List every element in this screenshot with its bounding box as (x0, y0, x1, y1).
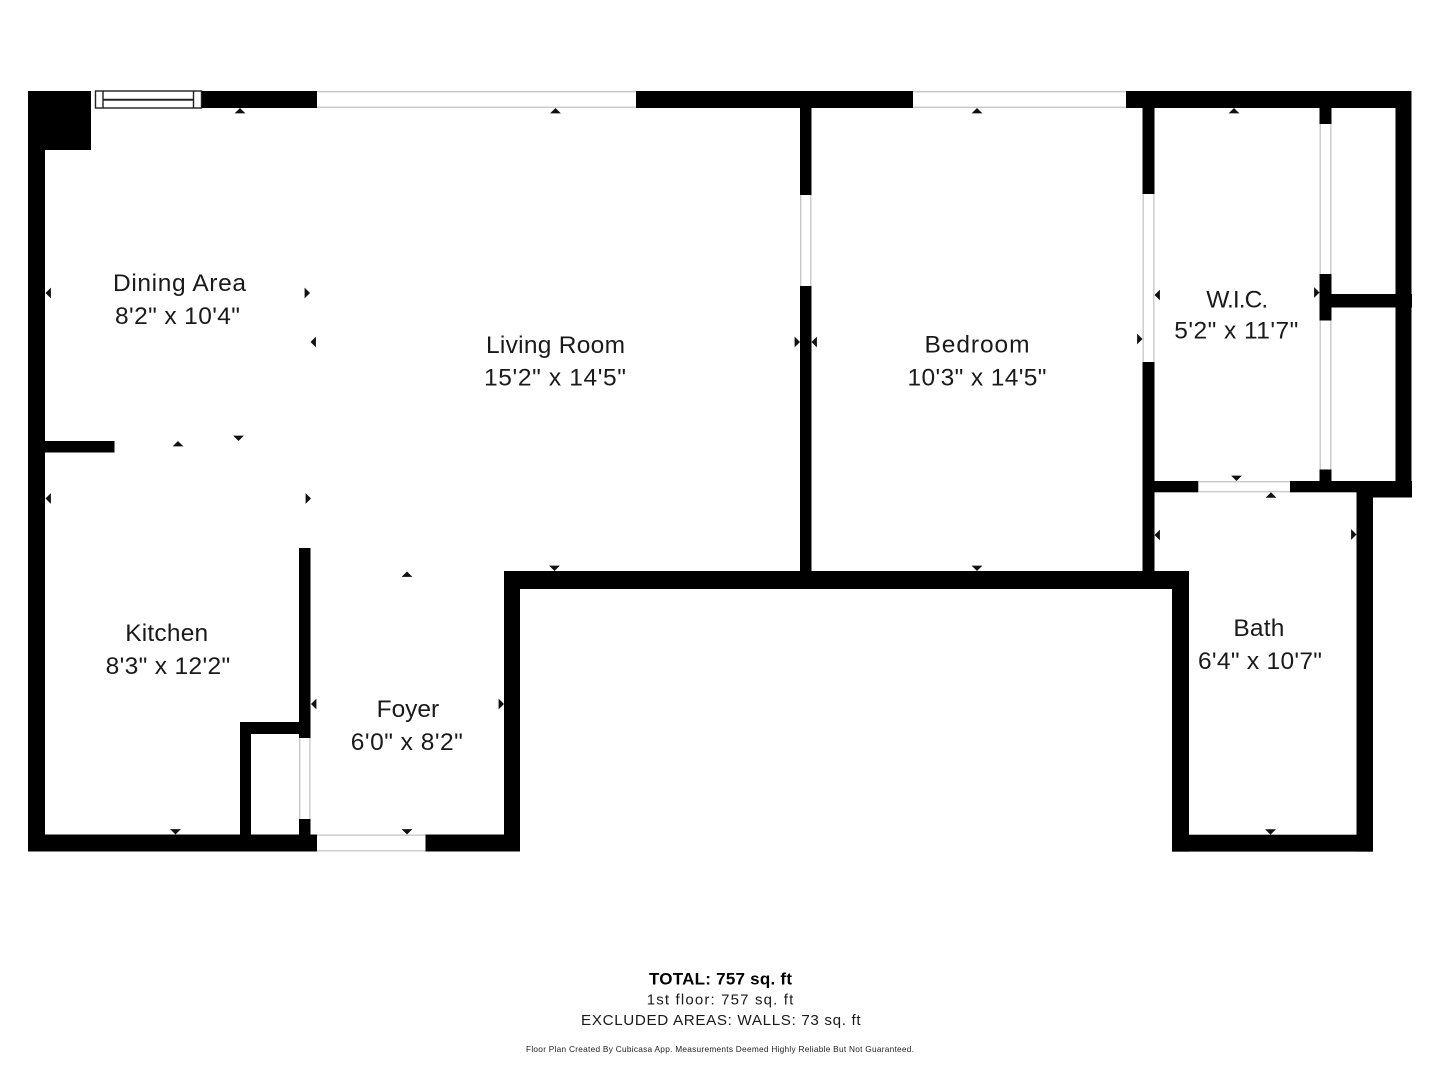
svg-text:5'2" x 11'7": 5'2" x 11'7" (1174, 318, 1298, 345)
svg-text:W.I.C.: W.I.C. (1206, 287, 1268, 314)
svg-text:Kitchen: Kitchen (125, 620, 208, 647)
svg-text:EXCLUDED AREAS: WALLS: 73 sq.: EXCLUDED AREAS: WALLS: 73 sq. ft (581, 1012, 861, 1029)
svg-text:Living Room: Living Room (486, 332, 625, 359)
svg-text:15'2" x 14'5": 15'2" x 14'5" (484, 365, 626, 392)
svg-text:Bedroom: Bedroom (925, 332, 1030, 359)
svg-text:8'3" x 12'2": 8'3" x 12'2" (106, 653, 231, 680)
svg-text:Foyer: Foyer (377, 696, 440, 723)
svg-text:Dining Area: Dining Area (113, 270, 246, 297)
svg-text:6'0" x 8'2": 6'0" x 8'2" (351, 729, 463, 756)
svg-text:TOTAL: 757 sq. ft: TOTAL: 757 sq. ft (649, 970, 792, 989)
svg-text:10'3" x 14'5": 10'3" x 14'5" (908, 365, 1047, 392)
svg-text:Floor Plan Created By Cubicasa: Floor Plan Created By Cubicasa App. Meas… (526, 1044, 914, 1054)
svg-text:Bath: Bath (1233, 615, 1284, 642)
svg-text:6'4" x 10'7": 6'4" x 10'7" (1198, 648, 1322, 675)
svg-text:8'2" x 10'4": 8'2" x 10'4" (115, 303, 240, 330)
